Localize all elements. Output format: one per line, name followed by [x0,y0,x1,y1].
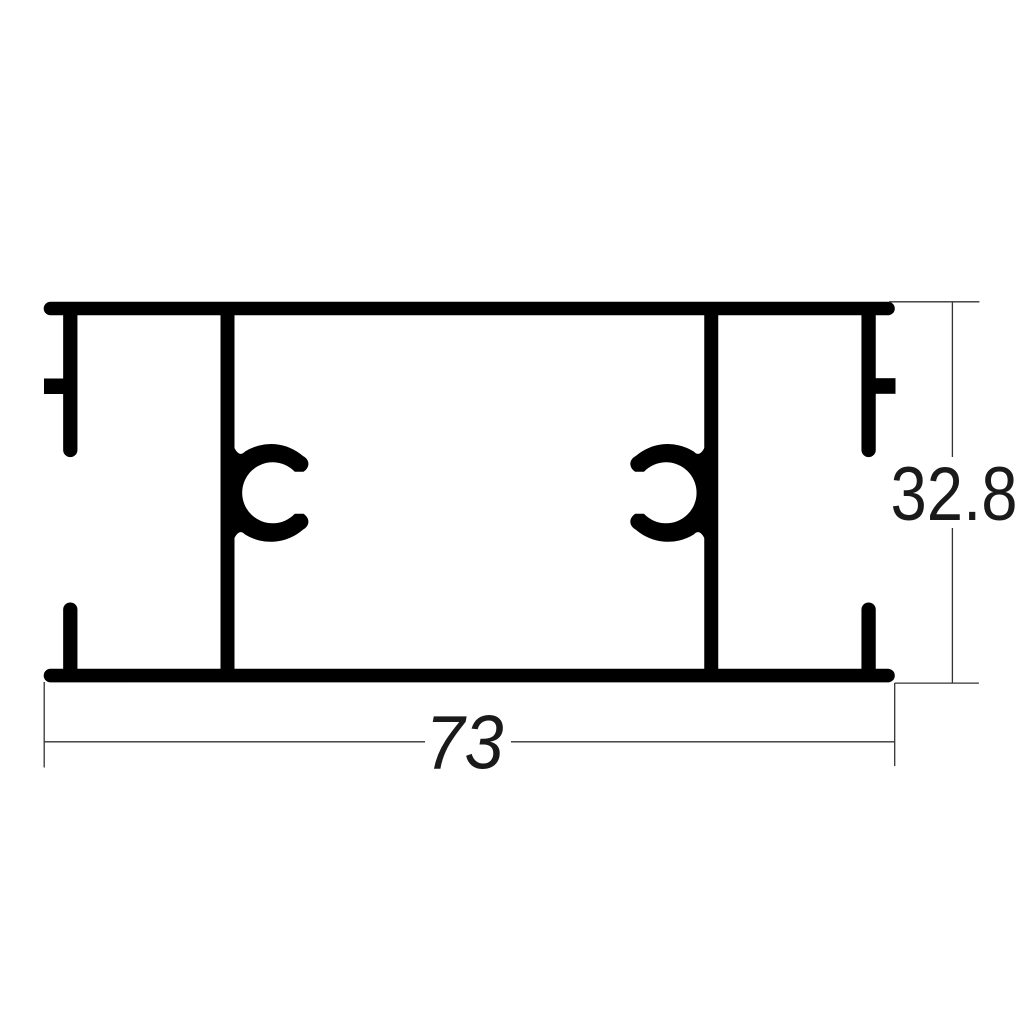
svg-text:73: 73 [426,701,504,786]
svg-text:32.8: 32.8 [891,452,1018,537]
